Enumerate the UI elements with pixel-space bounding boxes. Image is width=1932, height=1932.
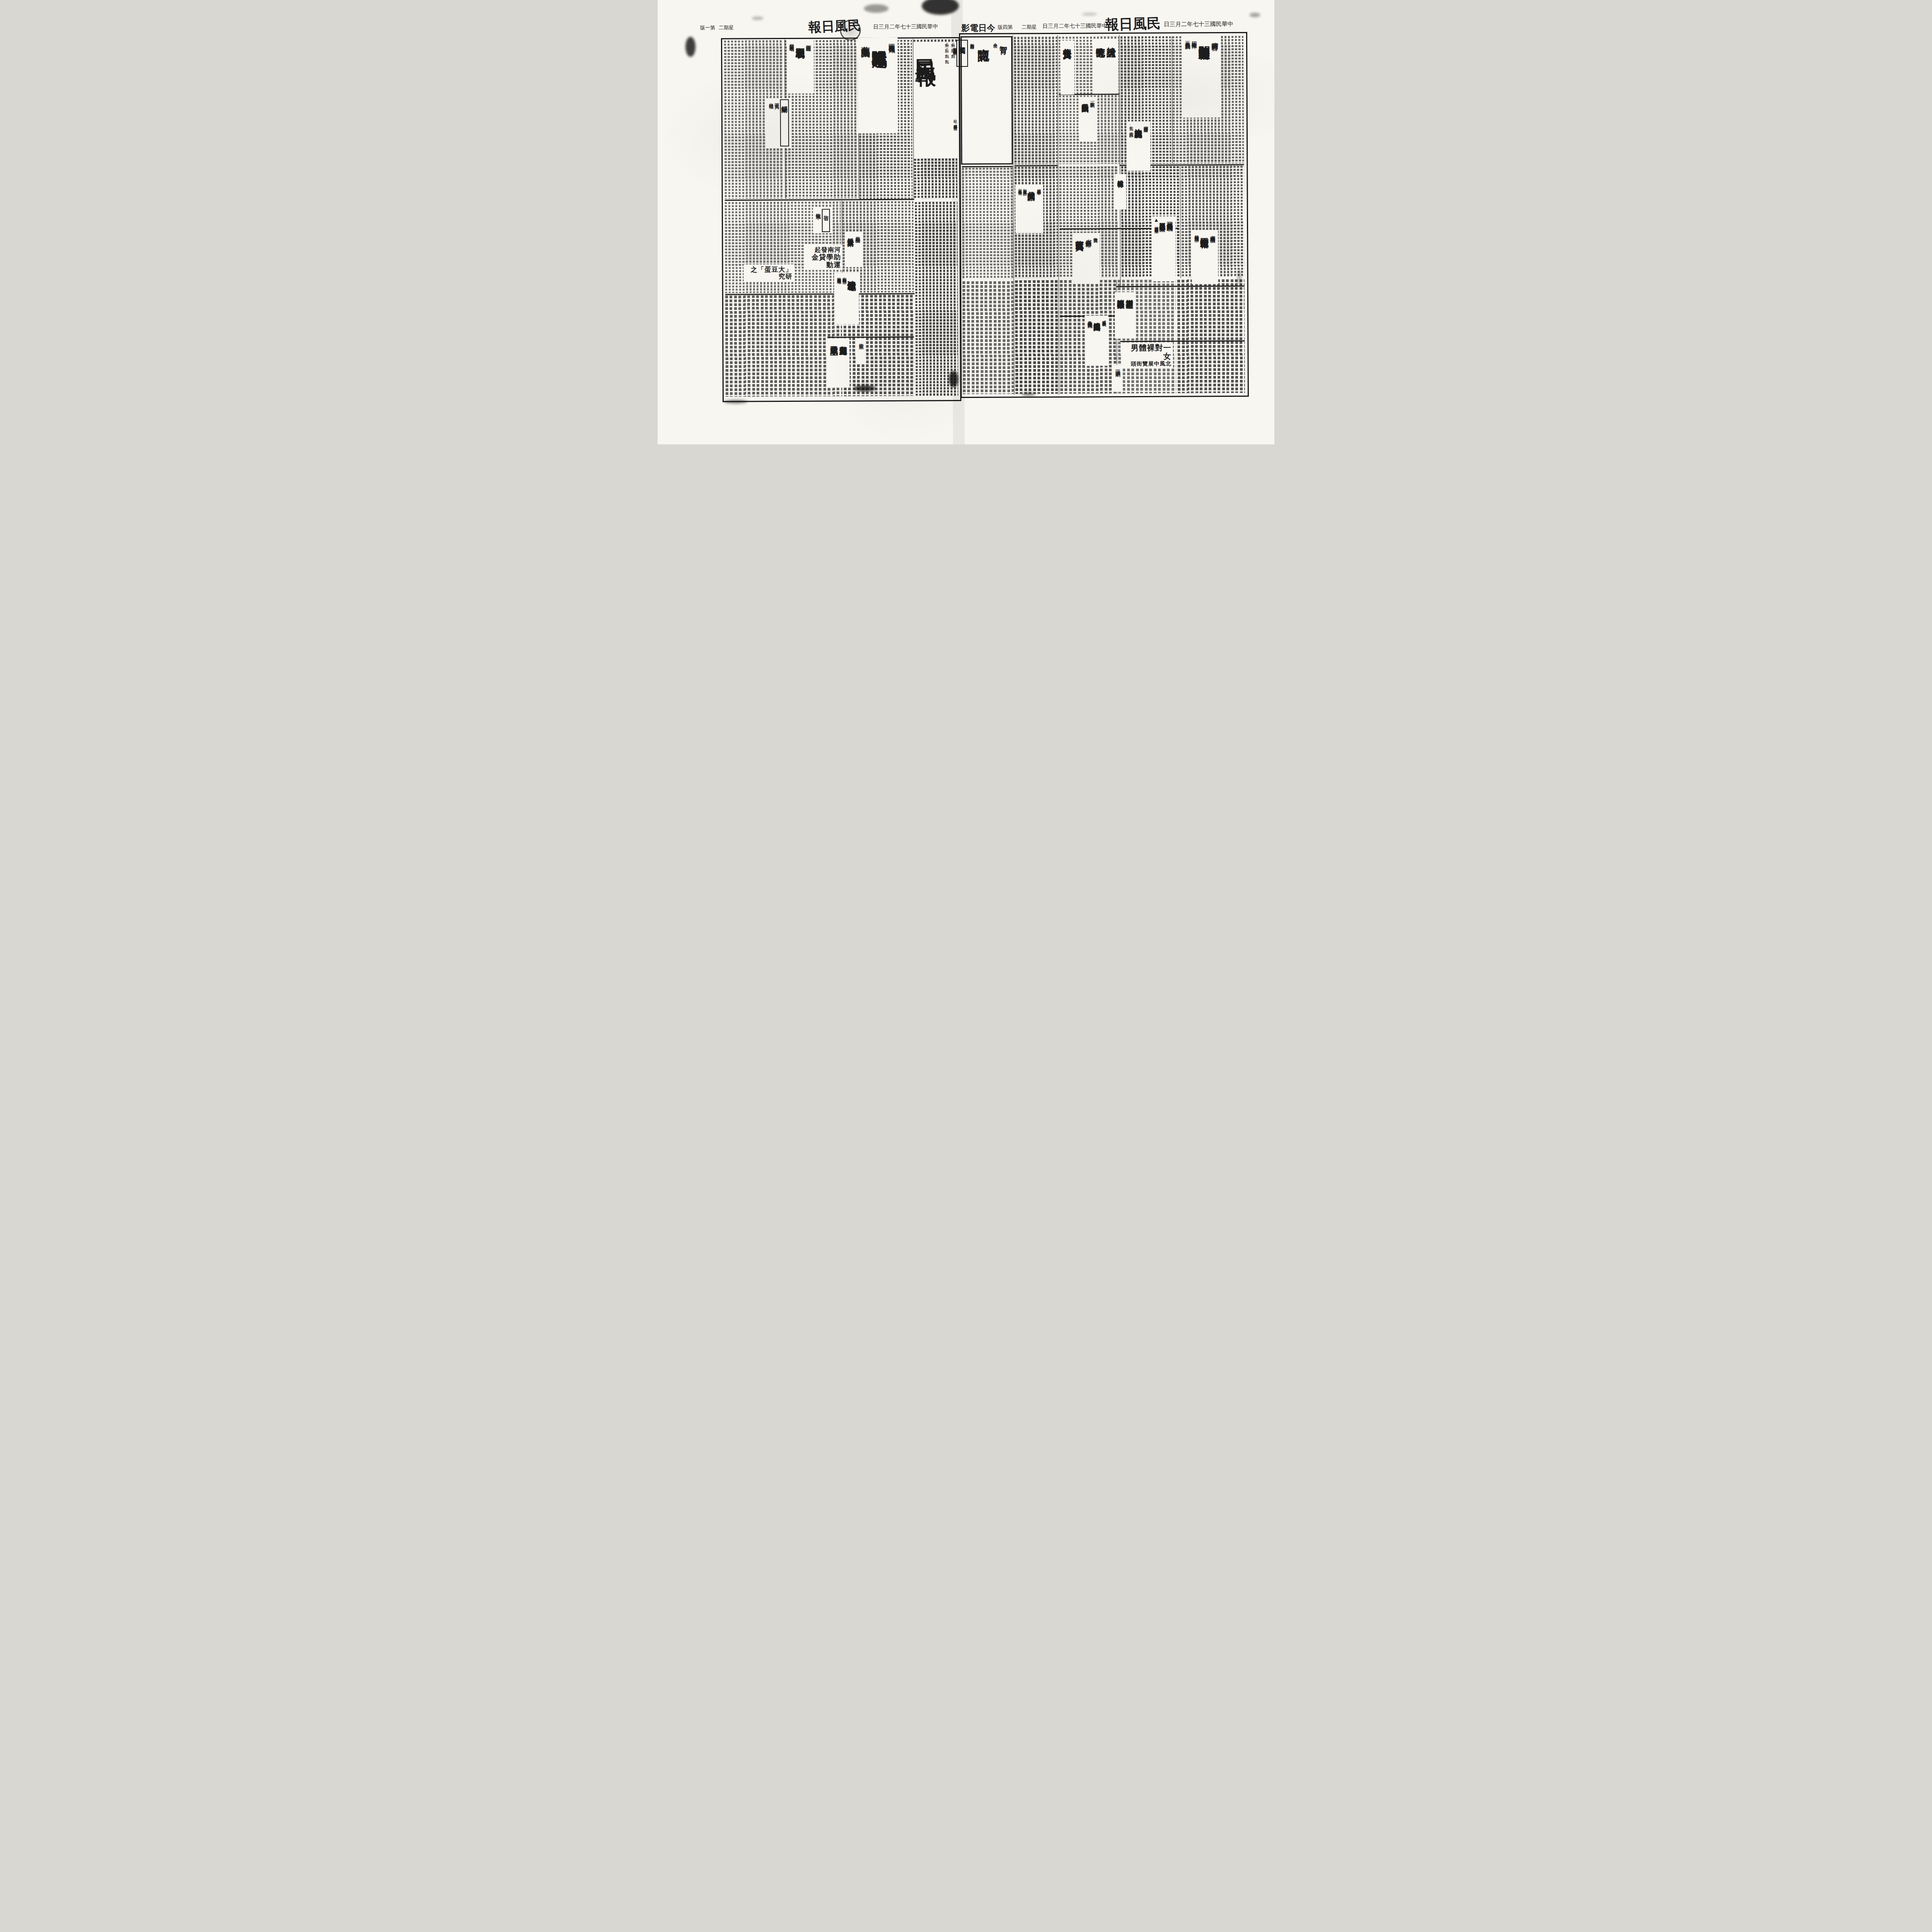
xinjiang-kicker: 新疆正進行 (806, 41, 812, 92)
nude-title: 一對裸體男女 (1123, 344, 1171, 361)
right-page-edition: 第四版 (998, 24, 1013, 31)
gandhi-title: 追懷聖雄甘地 (847, 274, 856, 323)
newspaper-scan: 第一版 星期二 民風日報 中華民國三十七年二月三日 第四版 星期二 中華民國三十… (658, 0, 1274, 444)
headline-election-review: 檢討大選 流弊有七 (1093, 39, 1118, 94)
headline-train-yi-people: 省府開發邊區 決先訓練夷胞 先在五、十六區設班 (1126, 121, 1151, 171)
left-page-edition: 第一版 (700, 24, 715, 31)
iron-subtitle: 各地發生煤荒鐵荒 (1087, 317, 1093, 365)
cinema-section-header: 今日電影 (961, 22, 995, 34)
xinjiang-subtitle: 用以開闢七萬畝地 (789, 41, 794, 92)
kidnap-title2: 樂至連日發生綁案 (1159, 218, 1166, 280)
headline-transport-office: 交部儲運總處 業已正式成立 (827, 338, 850, 388)
headline-soybean-research: 「大豆蛋」之研究 (743, 264, 794, 282)
gandhi-sub2: 甘地被刺處成聖地 (837, 274, 841, 323)
bank-title: 改組省銀行 (1117, 175, 1124, 208)
headline-council-fight: 古宋一醜劇 議長院長動武 (1079, 97, 1097, 142)
kidnap-title1: 落選者搶人撈「稍」 (1167, 218, 1173, 280)
rice-pest-title1: 增加稻米生產 (1126, 293, 1134, 337)
cinema-listings-box: 智育 今天公映 賣吻記 新裝內部開幕 國民 十二點‧三點‧六點 十二點‧三點‧六… (961, 36, 1013, 165)
cinema-theater2: 國民 (956, 40, 968, 67)
monthly-meeting-title: 陳開泗報告選政 (1198, 37, 1211, 116)
gandhi-sub1: 印人朝拜柏拉別墅 (842, 274, 846, 323)
headline-rice-pest-control: 增加稻米生產 訓練農民治蟲 (1115, 292, 1136, 338)
xinjiang-title: 艱巨水利工程 (795, 41, 805, 92)
iron-title: 達縣鐵廠又倒閉 (1093, 316, 1101, 364)
right-page-masthead: 民風日報 (1105, 14, 1161, 34)
school-kicker: 綏屬某某中學 (1036, 185, 1041, 232)
election-review-title2: 流弊有七 (1095, 40, 1105, 92)
headline-gandhi-memorial: 追懷聖雄甘地 印人朝拜柏拉別墅 甘地被刺處成聖地 (834, 272, 859, 324)
body-text-block (1014, 37, 1058, 164)
headline-xinjiang-irrigation: 新疆正進行 艱巨水利工程 用以開闢七萬畝地 (787, 39, 814, 94)
ink-smudge (1250, 13, 1260, 17)
body-text-layer (658, 0, 1273, 1)
nameplate-title: 民風日報 (914, 43, 938, 155)
cinema-note2: 新裝內部開幕 (969, 40, 975, 161)
ink-smudge (949, 371, 958, 387)
grain-price-title: 平抑產區價格 (1200, 231, 1209, 283)
right-page-weekday: 星期二 (1022, 24, 1037, 31)
headline-shandong-cold: 魯省 氣候奇寒 (813, 208, 833, 233)
school-sub1: 對該校女生亂下評語 (1022, 185, 1027, 232)
election-review-title1: 檢討大選 (1106, 40, 1116, 92)
train-yi-subtitle: 先在五、十六區設班 (1129, 122, 1133, 170)
ink-smudge (752, 16, 764, 20)
school-title: 校長大鬧笑話 (1027, 185, 1036, 232)
cinema-times1: 十二點‧三點‧六點 (950, 40, 956, 161)
headline-poor-relief: 救濟貧弱！ 省府令各縣市 收容五百貧民 (1073, 233, 1100, 283)
jiaobu-title2: 業已正式成立 (830, 339, 838, 386)
ceylon-sub2: 自治領地位 (769, 99, 774, 146)
ink-smudge (864, 4, 889, 13)
cinema-times2: 十二點‧三點‧六點‧九點 (944, 40, 950, 161)
council-fight-title: 議長院長動武 (1082, 98, 1089, 141)
body-text-block (725, 295, 842, 396)
headline-nude-couple: 一對裸體男女 北風中展覽街頭 (1122, 342, 1173, 369)
scan-sheet: 第一版 星期二 民風日報 中華民國三十七年二月三日 第四版 星期二 中華民國三十… (658, 0, 1274, 444)
headline-monthly-meeting: 省府昨開月會 陳開泗報告選政 糾紛案達六十一件 三黨合作妥為協調 (1182, 36, 1221, 117)
ceylon-title: 錫蘭 (780, 99, 789, 146)
soybean-title: 「大豆蛋」之研究 (745, 266, 792, 280)
ink-smudge (1082, 13, 1097, 16)
rice-pest-title2: 訓練農民治蟲 (1117, 293, 1125, 337)
monthly-meeting-sub1: 糾紛案達六十一件 (1191, 37, 1197, 116)
shandong-kicker: 魯省 (822, 209, 830, 232)
henan-kicker: 河南發起 (805, 246, 841, 253)
headline-liaoyang-battle: 正陽新蔡戰火復熾 遼陽戰事再起 蘇北海安並未失陷 (858, 37, 898, 133)
liaoyang-title: 遼陽戰事再起 (871, 39, 888, 132)
grain-price-subtitle: 並特指定銀行承辦 (1194, 231, 1199, 283)
liaoyang-kicker: 正陽新蔡戰火復熾 (888, 39, 896, 132)
body-text-block (963, 281, 1014, 394)
headline-emperor-worship: 崇敬天皇 (856, 338, 866, 364)
iron-kicker: 威遠煤廠不景氣 (1102, 316, 1106, 364)
body-text-block (1177, 279, 1245, 393)
poor-relief-kicker: 救濟貧弱！ (1093, 234, 1097, 282)
shandong-title: 氣候奇寒 (815, 209, 821, 232)
jiaobu-title1: 交部儲運總處 (839, 339, 847, 386)
ink-smudge (685, 37, 696, 57)
headline-ironworks-closure: 威遠煤廠不景氣 達縣鐵廠又倒閉 各地發生煤荒鐵荒 (1085, 315, 1109, 366)
cinema-note1: 今天公映 (992, 40, 998, 161)
headline-dayanggou-farce: 大陽溝一鬧劇 (1113, 365, 1123, 392)
ceylon-sub1: 明正式邁入 (774, 99, 779, 146)
kidnap-side-item: ▲川邊問題益趨嚴重 (1154, 218, 1159, 280)
nude-subtitle: 北風中展覽街頭 (1124, 361, 1172, 367)
headline-tax-corruption: 征收主任貪污 (1060, 41, 1074, 95)
cinema-film1: 賣吻記 (975, 40, 992, 161)
grain-price-kicker: 省府為穩定糧價 (1210, 231, 1216, 283)
ink-smudge (1238, 269, 1242, 285)
headline-ceylon-dominion: 錫蘭 明正式邁入 自治領地位 (766, 98, 792, 148)
liaoyang-subtitle: 蘇北海安並未失陷 (860, 39, 871, 132)
headline-grain-price: 省府為穩定糧價 平抑產區價格 並特指定銀行承辦 (1192, 230, 1218, 284)
ink-smudge (724, 400, 747, 403)
body-text-block (1015, 280, 1059, 394)
tax-title: 征收主任貪污 (1063, 42, 1072, 94)
body-text-block (915, 202, 958, 396)
cinema-theater1: 智育 (998, 40, 1009, 161)
poor-relief-title2: 收容五百貧民 (1075, 234, 1084, 282)
left-page-date: 中華民國三十七年二月三日 (873, 23, 938, 31)
tenno-title: 崇敬天皇 (858, 339, 864, 362)
headline-bank-reorg: 改組省銀行 (1115, 174, 1126, 209)
poor-relief-title1: 省府令各縣市 (1085, 234, 1092, 282)
marshall-kicker: 馬歇爾提出 (855, 233, 860, 266)
right-page-date: 中華民國三十七年二月三日 (1043, 22, 1107, 30)
monthly-meeting-sub2: 三黨合作妥為協調 (1185, 37, 1191, 116)
monthly-meeting-kicker: 省府昨開月會 (1211, 37, 1219, 116)
section-rule (1014, 165, 1058, 166)
farce-title: 大陽溝一鬧劇 (1115, 366, 1121, 391)
headline-kidnap-cases: 落選者搶人撈「稍」 樂至連日發生綁案 ▲川邊問題益趨嚴重 (1151, 216, 1176, 281)
right-page-date-right: 中華民國三十七年二月三日 (1164, 20, 1233, 28)
school-sub2: 引起該縣人士不滿 (1018, 185, 1022, 232)
council-fight-kicker: 古宋一醜劇 (1090, 98, 1095, 141)
body-text-block (914, 158, 957, 199)
train-yi-kicker: 省府開發邊區 (1143, 122, 1148, 170)
headline-marshall-aid-bill: 馬歇爾提出 援外新法案 (845, 231, 863, 267)
body-text-block (962, 167, 1013, 279)
headline-henan-scholarship: 河南發起 助學貸金運動 (804, 245, 842, 270)
train-yi-title: 決先訓練夷胞 (1134, 122, 1143, 170)
henan-title: 助學貸金運動 (805, 253, 841, 269)
marshall-title: 援外新法案 (847, 233, 854, 266)
headline-school-scandal: 綏屬某某中學 校長大鬧笑話 對該校女生亂下評語 引起該縣人士不滿 (1015, 184, 1044, 233)
left-page-weekday: 星期二 (719, 24, 734, 31)
